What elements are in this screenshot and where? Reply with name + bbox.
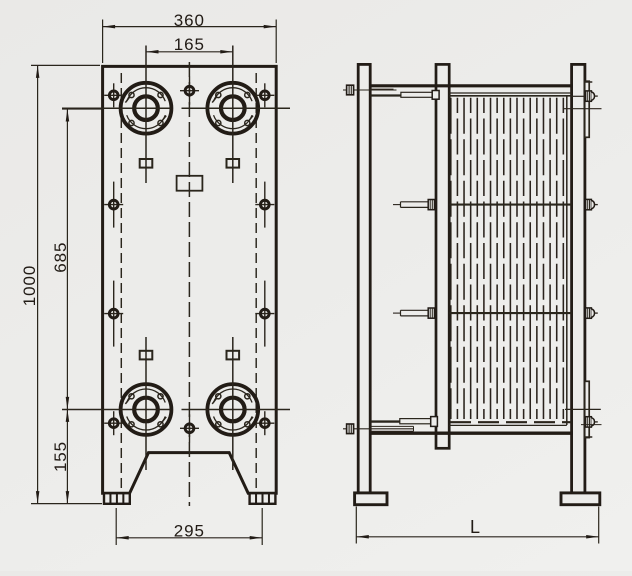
svg-text:360: 360	[174, 11, 205, 30]
svg-text:165: 165	[174, 35, 205, 54]
svg-text:155: 155	[51, 441, 70, 472]
svg-text:L: L	[470, 517, 481, 537]
svg-text:295: 295	[174, 521, 205, 540]
svg-text:1000: 1000	[20, 265, 39, 306]
svg-text:685: 685	[51, 242, 70, 273]
